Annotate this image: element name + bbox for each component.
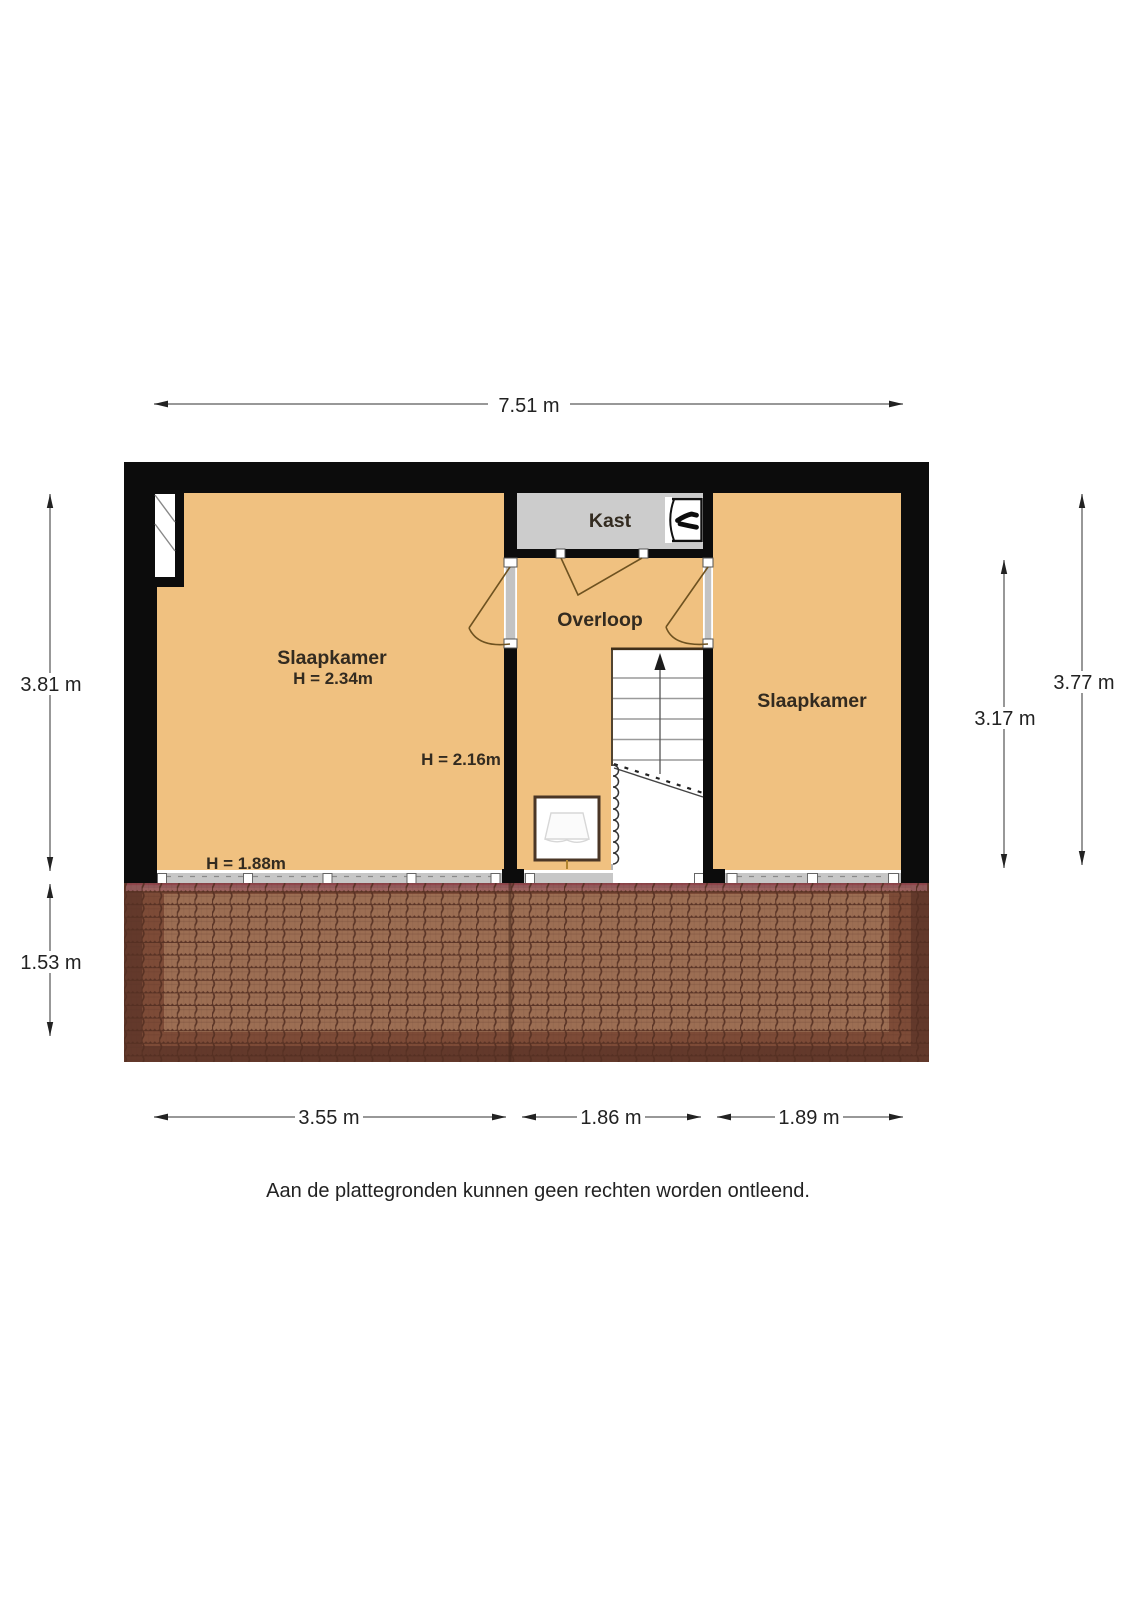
svg-text:3.81 m: 3.81 m [20,674,81,696]
svg-text:H = 2.34m: H = 2.34m [293,669,373,688]
svg-text:3.17 m: 3.17 m [974,708,1035,730]
svg-text:Slaapkamer: Slaapkamer [757,690,867,712]
svg-text:1.86 m: 1.86 m [580,1107,641,1129]
svg-text:1.89 m: 1.89 m [778,1107,839,1129]
svg-text:1.53 m: 1.53 m [20,952,81,974]
svg-text:H = 2.16m: H = 2.16m [421,750,501,769]
svg-text:7.51 m: 7.51 m [498,395,559,417]
svg-text:H = 1.88m: H = 1.88m [206,854,286,873]
svg-text:3.77 m: 3.77 m [1053,672,1114,694]
svg-text:Aan de plattegronden kunnen ge: Aan de plattegronden kunnen geen rechten… [266,1180,810,1202]
svg-text:3.55 m: 3.55 m [298,1107,359,1129]
svg-text:Kast: Kast [589,510,632,532]
svg-text:Slaapkamer: Slaapkamer [277,647,387,669]
svg-text:Overloop: Overloop [557,609,643,631]
